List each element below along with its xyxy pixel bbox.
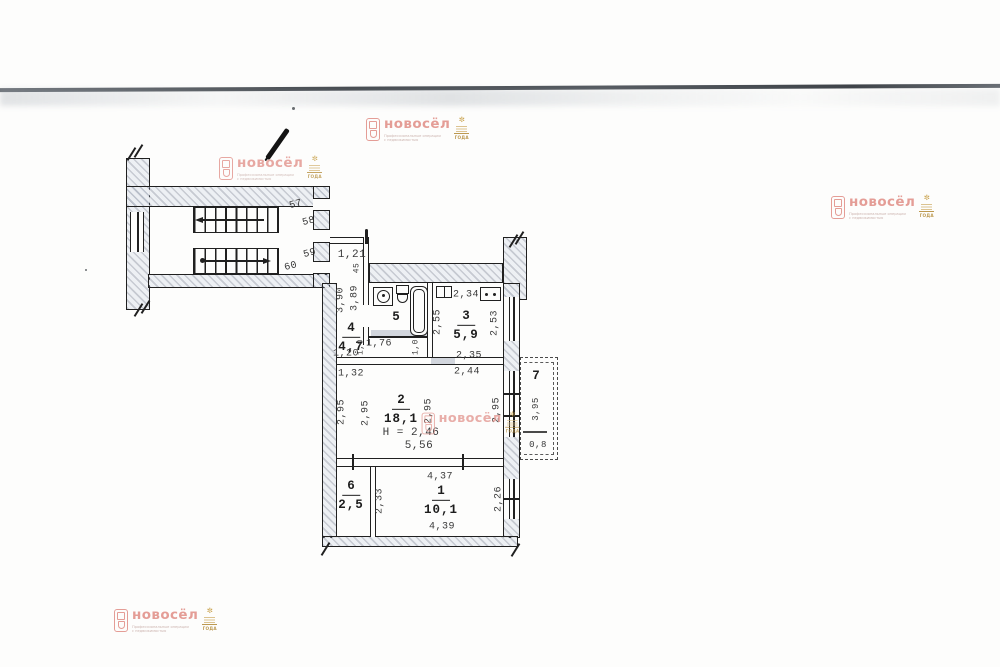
award-badge-icon: ✼ ГОДА bbox=[307, 155, 322, 179]
room2-area: 18,1 bbox=[384, 412, 418, 426]
dimension-tick bbox=[352, 454, 354, 470]
burner-dot bbox=[485, 293, 488, 296]
badge-emblem-icon: ✼ bbox=[505, 411, 519, 420]
unit-number-57: 57 bbox=[288, 198, 303, 212]
window-mullion bbox=[137, 212, 139, 252]
unit-door-opening bbox=[313, 229, 330, 243]
badge-year-text: ГОДА bbox=[202, 624, 217, 631]
toilet-bowl-icon bbox=[397, 294, 408, 303]
room7-label: 7 bbox=[532, 370, 540, 384]
brand-name: новосёл bbox=[439, 413, 502, 426]
window-mullion bbox=[509, 297, 511, 341]
room2-bottom-wall bbox=[337, 458, 503, 467]
dim-hall-w-b: 1,32 bbox=[338, 369, 364, 380]
dim-balcony-width: 0,8 bbox=[529, 440, 547, 450]
award-badge-icon: ✼ ГОДА bbox=[505, 411, 519, 434]
award-badge-icon: ✼ ГОДА bbox=[919, 194, 934, 218]
bathtub-icon bbox=[410, 286, 428, 336]
room6-area: 2,5 bbox=[338, 498, 364, 512]
dim-hall-len-a: 3,90 bbox=[336, 287, 347, 313]
brand-name: новосёл bbox=[237, 157, 303, 171]
badge-year-text: ГОДА bbox=[919, 211, 934, 218]
novosel-logo-icon bbox=[422, 413, 435, 435]
stair-direction-arrow bbox=[202, 219, 264, 221]
dim-room6-height: 2,33 bbox=[375, 488, 386, 514]
novosel-logo-icon bbox=[114, 609, 128, 632]
kitchen-door-opening bbox=[431, 358, 455, 364]
wall-break-mark bbox=[134, 144, 144, 158]
stairwell-window bbox=[130, 212, 144, 252]
sink-divider bbox=[444, 287, 445, 297]
arrowhead-icon bbox=[195, 217, 203, 223]
brand-tagline: Профессиональные операции с недвижимость… bbox=[384, 134, 450, 144]
badge-year-text: ГОДА bbox=[505, 427, 519, 434]
pen-tick bbox=[365, 229, 368, 244]
dim-kitchen-width-outer: 2,44 bbox=[454, 367, 480, 378]
novosel-text-block: новосёл Профессиональные операции с недв… bbox=[237, 157, 303, 182]
dim-kitchen-left: 2,55 bbox=[433, 309, 444, 335]
dim-balcony-length: 3,95 bbox=[531, 397, 541, 421]
novosel-logo-icon bbox=[219, 157, 233, 180]
dim-hall-len-b: 3,89 bbox=[350, 285, 361, 311]
unit-door-opening bbox=[313, 198, 330, 211]
badge-lines bbox=[456, 126, 467, 132]
kitchen-window bbox=[503, 297, 520, 341]
dim-entry-small: 45 bbox=[353, 263, 362, 274]
award-badge-icon: ✼ ГОДА bbox=[454, 116, 469, 140]
dim-room2-h-a: 2,95 bbox=[337, 399, 348, 425]
dim-room2-h-b: 2,95 bbox=[361, 400, 372, 426]
novosel-watermark: новосёл Профессиональные операции с недв… bbox=[219, 157, 322, 182]
stove-icon bbox=[480, 287, 501, 301]
room6-label: 6 2,5 bbox=[338, 477, 364, 513]
dim-kitchen-right: 2,53 bbox=[490, 310, 501, 336]
novosel-logo-icon bbox=[831, 196, 845, 219]
unit-number-60: 60 bbox=[283, 260, 298, 274]
dimension-tick bbox=[462, 454, 464, 470]
dim-bath-side-right: 1,0 bbox=[412, 339, 421, 355]
badge-lines bbox=[204, 617, 215, 623]
room3-label: 3 5,9 bbox=[453, 307, 479, 343]
dim-kitchen-top: 2,34 bbox=[453, 290, 479, 301]
kitchen-sink-icon bbox=[436, 286, 452, 298]
scan-fold-shadow bbox=[0, 89, 1000, 106]
room4-number: 4 bbox=[342, 322, 360, 338]
stairwell-bottom-wall bbox=[148, 274, 330, 288]
bathtub-inner bbox=[413, 289, 425, 333]
dim-room1-top: 4,37 bbox=[427, 472, 453, 483]
room6-number: 6 bbox=[342, 480, 360, 496]
novosel-watermark: новосёл Профессиональные операции с недв… bbox=[114, 609, 217, 634]
balcony-dim-line bbox=[523, 431, 547, 433]
brand-tagline: Профессиональные операции с недвижимость… bbox=[132, 625, 198, 635]
badge-emblem-icon: ✼ bbox=[307, 155, 322, 164]
dim-entry-width: 1,21 bbox=[338, 249, 366, 261]
arrowhead-icon bbox=[263, 258, 271, 264]
room1-label: 1 10,1 bbox=[424, 482, 458, 518]
room2-number: 2 bbox=[392, 394, 410, 410]
window-transom bbox=[504, 498, 519, 500]
novosel-watermark: новосёл Профессиональные операции с недв… bbox=[831, 196, 934, 221]
window-transom bbox=[504, 393, 519, 395]
entry-top-wall bbox=[330, 237, 367, 244]
room3-number: 3 bbox=[457, 310, 475, 326]
washbasin-icon bbox=[373, 287, 393, 306]
badge-lines bbox=[921, 204, 932, 210]
unit-door-opening bbox=[313, 261, 330, 274]
scan-speck bbox=[292, 107, 295, 110]
room1-number: 1 bbox=[432, 485, 450, 501]
brand-name: новосёл bbox=[849, 196, 915, 210]
badge-emblem-icon: ✼ bbox=[202, 607, 217, 616]
room3-area: 5,9 bbox=[453, 328, 479, 342]
dim-room1-bottom: 4,39 bbox=[429, 522, 455, 533]
dim-kitchen-width: 2,35 bbox=[456, 351, 482, 362]
badge-year-text: ГОДА bbox=[454, 133, 469, 140]
apartment-top-wall bbox=[369, 263, 503, 283]
novosel-text-block: новосёл Профессиональные операции с недв… bbox=[384, 118, 450, 143]
room5-label: 5 bbox=[392, 311, 400, 325]
badge-emblem-icon: ✼ bbox=[454, 116, 469, 125]
room2-label: 2 18,1 bbox=[384, 391, 418, 427]
brand-tagline: Профессиональные операции с недвижимость… bbox=[849, 212, 915, 222]
novosel-text-block: новосёл bbox=[439, 413, 502, 426]
scanned-floorplan-page: 57 58 59 60 1,21 45 bbox=[0, 0, 1000, 667]
apartment-left-wall bbox=[322, 283, 337, 538]
burner-dot bbox=[493, 293, 496, 296]
hall-bath-wall bbox=[363, 285, 369, 305]
badge-year-text: ГОДА bbox=[307, 172, 322, 179]
dim-room2-width: 5,56 bbox=[405, 440, 433, 452]
dim-room1-right: 2,26 bbox=[494, 486, 505, 512]
badge-lines bbox=[309, 165, 320, 171]
badge-emblem-icon: ✼ bbox=[919, 194, 934, 203]
room1-window bbox=[503, 479, 520, 519]
washbasin-drain bbox=[382, 294, 385, 297]
novosel-logo-icon bbox=[366, 118, 380, 141]
dim-hall-w-a: 1,20 bbox=[333, 349, 359, 360]
apartment-bottom-wall bbox=[322, 536, 518, 547]
novosel-watermark: новосёл ✼ ГОДА bbox=[422, 413, 520, 435]
novosel-text-block: новосёл Профессиональные операции с недв… bbox=[849, 196, 915, 221]
brand-name: новосёл bbox=[384, 118, 450, 132]
toilet-tank-icon bbox=[396, 285, 409, 294]
badge-lines bbox=[507, 420, 517, 426]
window-mullion bbox=[513, 297, 515, 341]
dim-bath-width: 1,76 bbox=[366, 339, 392, 350]
scan-speck bbox=[85, 269, 87, 271]
award-badge-icon: ✼ ГОДА bbox=[202, 607, 217, 631]
brand-tagline: Профессиональные операции с недвижимость… bbox=[237, 173, 303, 183]
room1-area: 10,1 bbox=[424, 503, 458, 517]
novosel-text-block: новосёл Профессиональные операции с недв… bbox=[132, 609, 198, 634]
stair-direction-arrow bbox=[202, 260, 264, 262]
brand-name: новосёл bbox=[132, 609, 198, 623]
novosel-watermark: новосёл Профессиональные операции с недв… bbox=[366, 118, 469, 143]
dim-bath-side-left: 1,0 bbox=[357, 339, 366, 355]
